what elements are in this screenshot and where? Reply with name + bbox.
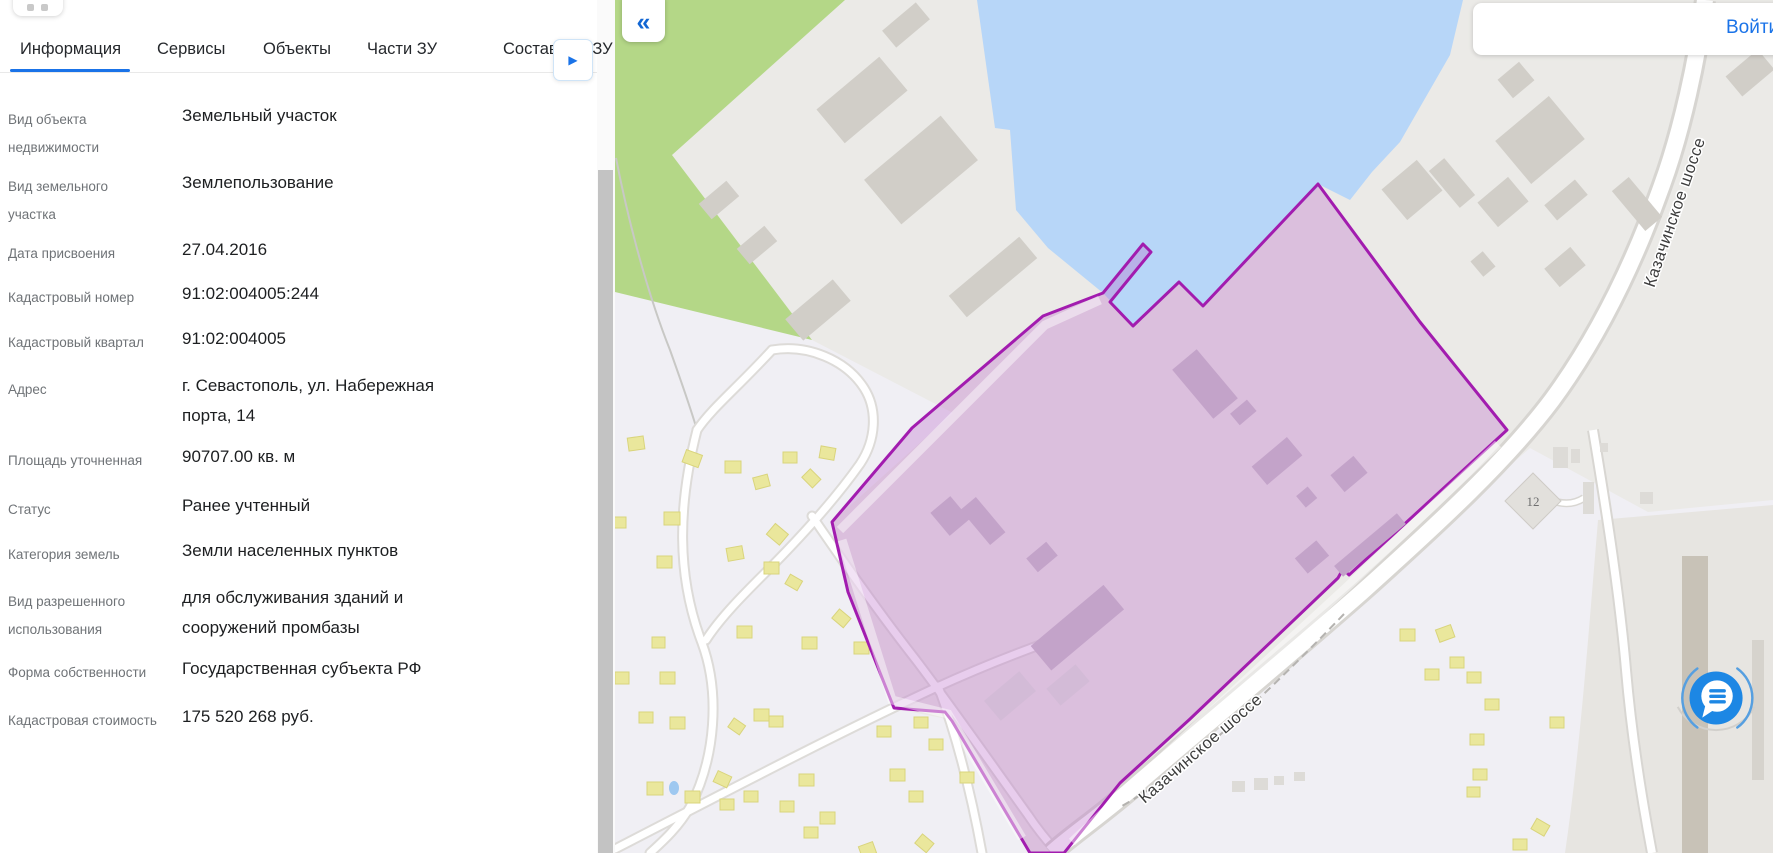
tab-scroll-right-button[interactable]: ▶ [553,39,593,81]
tab-informatsiya[interactable]: Информация [20,40,121,59]
map-pond [669,781,679,795]
field-label: Вид земельного участка [8,173,158,229]
field-label: Статус [8,496,158,524]
field-label: Адрес [8,376,158,404]
field-label: Форма собственности [8,659,158,687]
field-value: 91:02:004005:244 [182,279,452,309]
cadastral-map-app: Казачинское шоссе Казачинское шоссе 12 «… [0,0,1773,853]
login-panel: Войти [1473,3,1773,55]
field-value: Государственная субъекта РФ [182,654,452,684]
field-value: Землепользование [182,168,452,198]
field-label: Кадастровая стоимость [8,707,158,735]
field-label: Кадастровый квартал [8,329,158,357]
chat-button[interactable] [1662,643,1773,755]
tab-bar: Информация Сервисы Объекты Части ЗУ Сост… [0,0,597,73]
field-label: Кадастровый номер [8,284,158,312]
field-value: Земли населенных пунктов [182,536,452,566]
info-panel: Информация Сервисы Объекты Части ЗУ Сост… [0,0,597,853]
field-value: Ранее учтенный [182,491,452,521]
active-tab-underline [10,69,130,72]
field-label: Площадь уточненная [8,447,158,475]
scrollbar-thumb[interactable] [598,170,613,853]
field-value: г. Севастополь, ул. Набережная порта, 14 [182,371,452,431]
chevron-double-left-icon: « [637,2,651,42]
field-value: для обслуживания зданий и сооружений про… [182,583,452,643]
field-label: Вид разрешенного использования [8,588,158,644]
login-button[interactable]: Войти [1726,17,1773,39]
field-value: 27.04.2016 [182,235,452,265]
building-12-label: 12 [1527,494,1540,509]
field-label: Дата присвоения [8,240,158,268]
panel-scrollbar[interactable] [597,0,615,853]
tab-chasti-zu[interactable]: Части ЗУ [367,40,437,59]
chat-icon [1662,643,1773,755]
field-label: Категория земель [8,541,158,569]
field-value: Земельный участок [182,101,452,131]
field-value: 90707.00 кв. м [182,442,452,472]
tab-obekty[interactable]: Объекты [263,40,331,59]
collapse-panel-button[interactable]: « [622,0,665,42]
tab-servisy[interactable]: Сервисы [157,40,225,59]
field-value: 91:02:004005 [182,324,452,354]
map-canvas[interactable]: Казачинское шоссе Казачинское шоссе 12 [615,0,1773,853]
map-svg: Казачинское шоссе Казачинское шоссе 12 [615,0,1773,853]
field-value: 175 520 268 руб. [182,702,452,732]
field-label: Вид объекта недвижимости [8,106,158,162]
triangle-right-icon: ▶ [568,53,577,67]
